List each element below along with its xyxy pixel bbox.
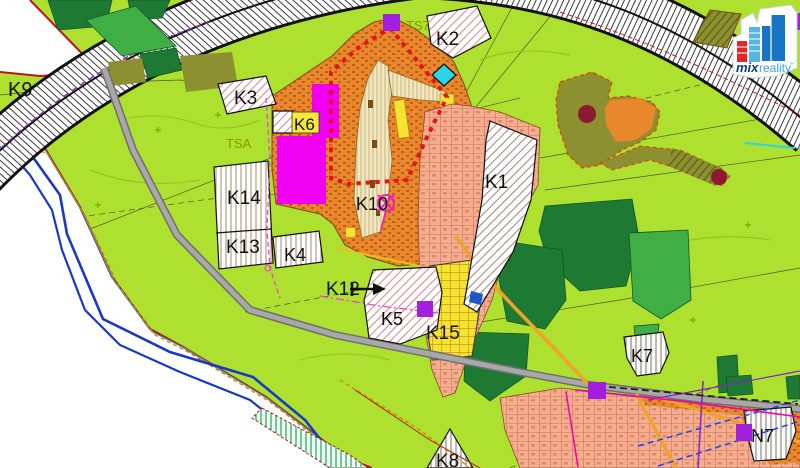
parcel-K6 (273, 111, 293, 133)
logo-text-reality: reality (759, 61, 791, 75)
zone-label-TSA: TSA (226, 136, 252, 151)
zone-label-K15: K15 (426, 323, 460, 344)
zoning-map[interactable]: K9TS7K2K3K6TSAK1K14K10K13K4K12K5K15K7K8N… (0, 0, 800, 468)
zone-label-K7: K7 (631, 346, 653, 366)
zone-label-K13: K13 (226, 237, 260, 258)
maroon-circle-marker-2 (711, 169, 727, 185)
maroon-circle-marker-1 (578, 105, 596, 123)
zone-label-K6: K6 (294, 115, 315, 134)
zone-label-K3: K3 (234, 88, 257, 109)
logo-text-mix: mix (736, 60, 759, 75)
zone-label-K4: K4 (284, 245, 306, 265)
zone-label-K14: K14 (227, 188, 261, 209)
purple-square-marker-3 (588, 382, 606, 399)
logo-red-building (737, 41, 747, 62)
magenta-area-2 (277, 136, 326, 204)
purple-square-marker-1 (383, 14, 400, 31)
purple-square-marker-4 (736, 424, 752, 441)
zone-label-K1: K1 (485, 172, 508, 193)
zone-label-N7: N7 (751, 426, 774, 446)
zone-label-K12: K12 (326, 279, 360, 300)
zone-label-K2: K2 (436, 29, 459, 50)
zone-label-K5: K5 (381, 309, 403, 329)
zone-label-K10: K10 (356, 194, 388, 214)
zone-label-TS7: TS7 (406, 18, 430, 33)
map-viewport: K9TS7K2K3K6TSAK1K14K10K13K4K12K5K15K7K8N… (0, 0, 800, 468)
zone-label-K8: K8 (436, 451, 459, 468)
purple-square-marker-2 (417, 301, 433, 317)
zone-label-K9: K9 (8, 79, 32, 101)
logo-trademark: ™ (789, 62, 794, 68)
